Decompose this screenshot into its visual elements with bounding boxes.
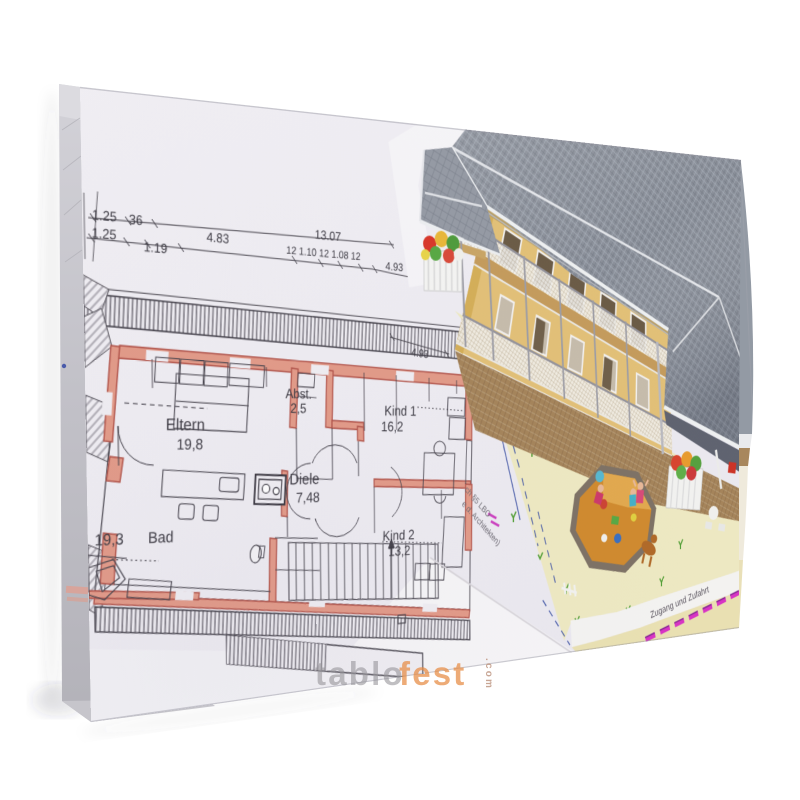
svg-text:.com: .com [483, 658, 494, 690]
svg-text:tablo: tablo [315, 655, 405, 692]
svg-text:fest: fest [399, 655, 467, 692]
